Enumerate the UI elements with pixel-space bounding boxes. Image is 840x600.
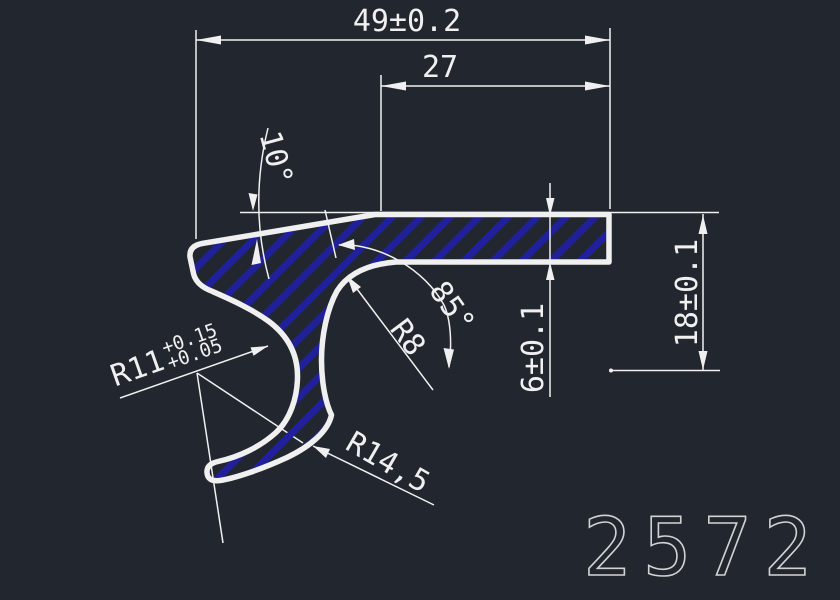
dim-overall-height-label: 18±0.1 — [670, 239, 705, 347]
dim-inner-radius: R11 +0.15 +0.05 — [105, 319, 268, 394]
arrowhead — [381, 82, 406, 91]
dim-fillet-radius: R8 — [347, 276, 433, 390]
arrowhead — [249, 193, 258, 211]
dim-outer-radius: R14,5 — [313, 425, 436, 500]
arrowhead — [313, 446, 330, 458]
arrowhead — [444, 348, 455, 369]
cad-drawing-viewport: 49±0.2 27 10° 85° R8 6±0.1 — [0, 0, 840, 600]
extension-line-dot — [609, 369, 613, 373]
dim-stem-angle-label: 85° — [422, 275, 482, 339]
dim-plate-thickness-label: 6±0.1 — [516, 303, 551, 393]
arrowhead — [699, 351, 708, 370]
dim-inner-radius-label: R11 — [106, 343, 169, 394]
arrowhead — [585, 82, 610, 91]
radius-center-line-b — [197, 373, 223, 543]
part-number: 2572 — [583, 501, 824, 594]
cad-drawing: 49±0.2 27 10° 85° R8 6±0.1 — [0, 0, 840, 600]
dim-overall-width-label: 49±0.2 — [353, 4, 461, 39]
arrowhead — [251, 346, 269, 356]
dim-fillet-radius-label: R8 — [383, 313, 433, 363]
arrowhead — [585, 36, 610, 45]
arrowhead — [196, 36, 221, 45]
arrowhead — [699, 215, 708, 234]
dim-top-angle-label: 10° — [252, 127, 300, 188]
dim-plate-width-label: 27 — [422, 50, 458, 85]
dim-outer-radius-label: R14,5 — [340, 425, 436, 500]
dim-plate-width: 27 — [381, 50, 610, 211]
dim-overall-height: 18±0.1 — [609, 214, 720, 373]
